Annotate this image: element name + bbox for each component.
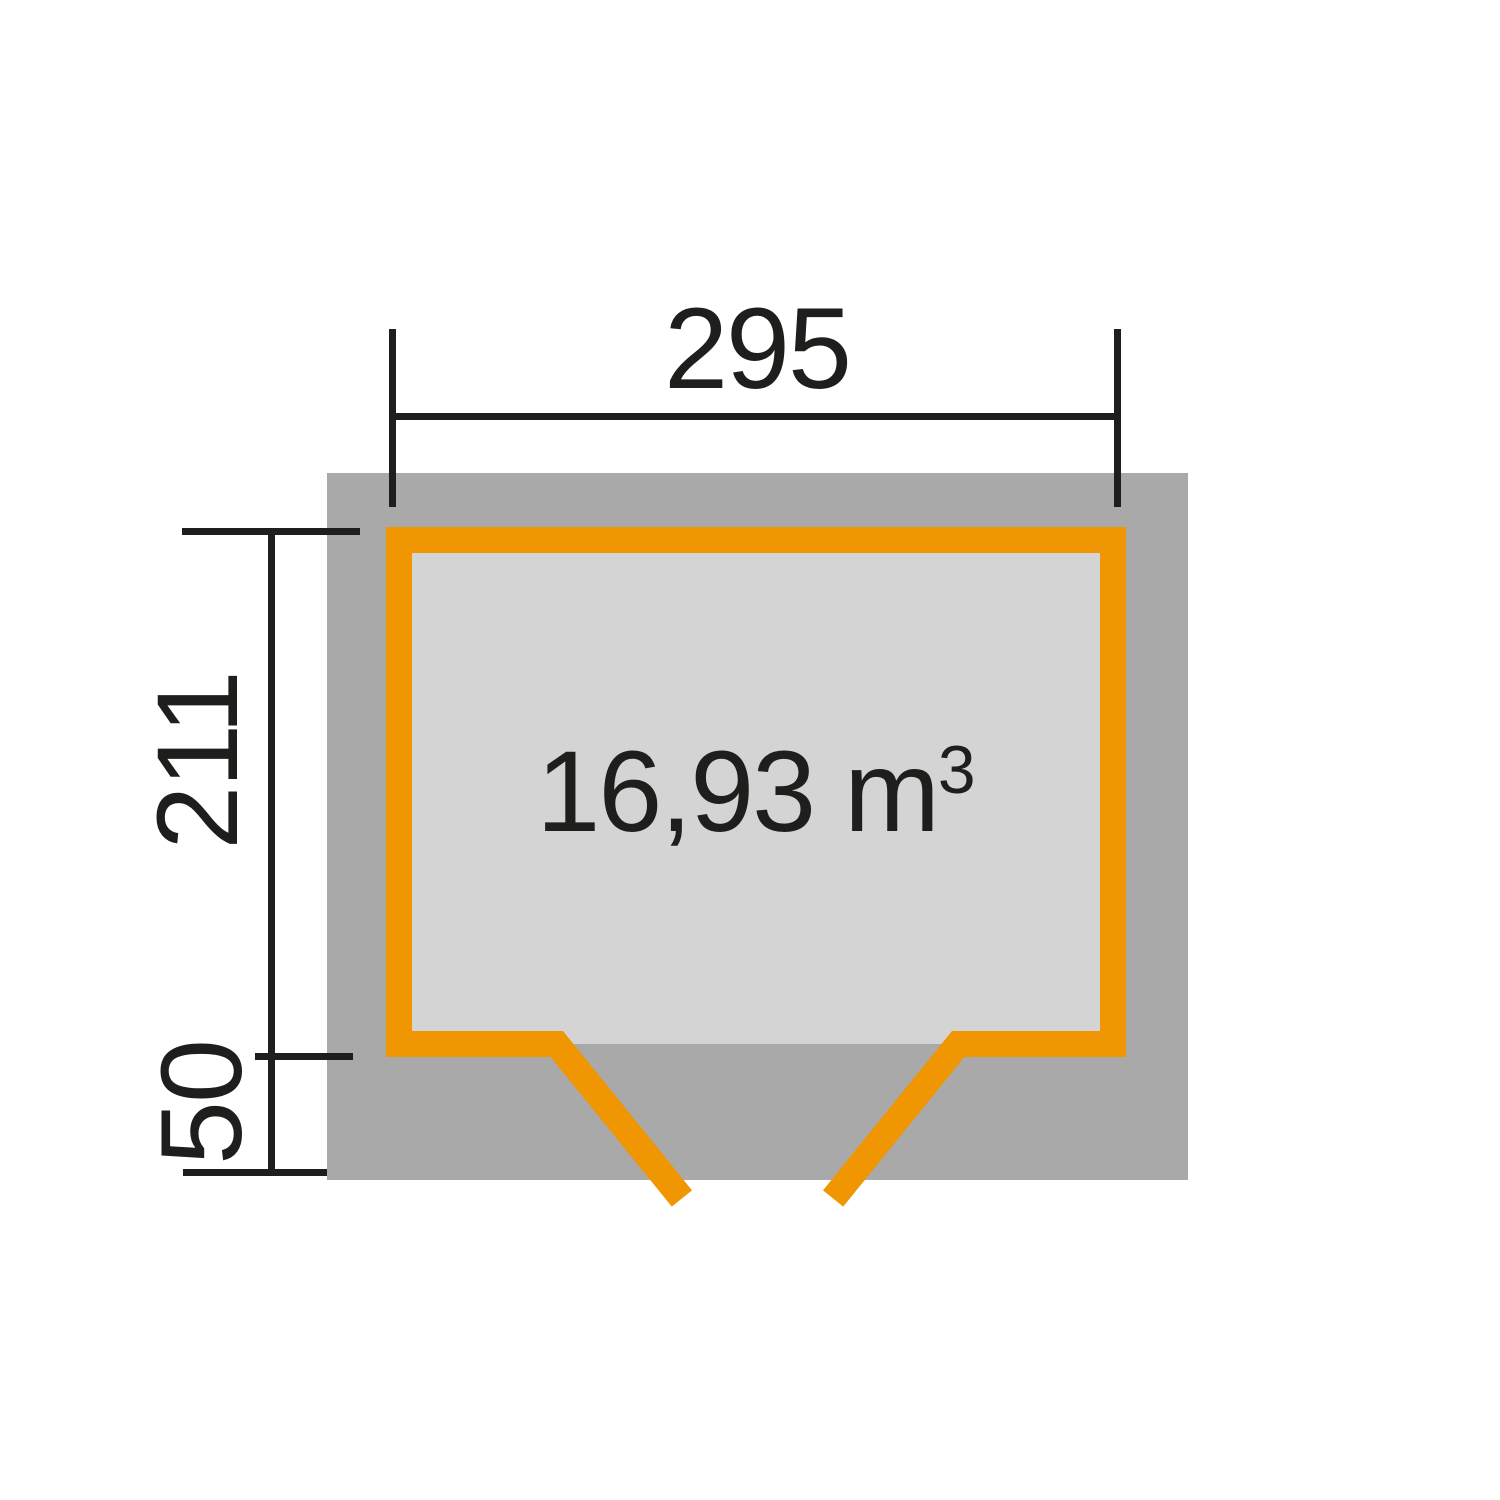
shed-interior-floor: 16,93 m3: [412, 553, 1100, 1031]
depth-tick-top: [182, 528, 360, 535]
width-dimension-line: [389, 413, 1121, 420]
depth-dimension-label: 211: [133, 601, 263, 921]
depth-tick-middle: [255, 1053, 353, 1060]
volume-exponent: 3: [938, 733, 976, 808]
volume-value: 16,93 m: [536, 728, 938, 856]
width-extension-tick-left: [389, 329, 396, 507]
shed-floor-plan-diagram: 16,93 m3 295 211 50: [0, 0, 1500, 1500]
volume-label: 16,93 m3: [536, 735, 975, 850]
depth-dimension-line: [268, 528, 275, 1176]
overhang-dimension-label: 50: [137, 943, 267, 1263]
door-opening-sill-outer: [563, 1044, 952, 1057]
width-extension-tick-right: [1114, 329, 1121, 507]
width-dimension-label: 295: [557, 284, 957, 414]
door-opening-sill-inner: [563, 1031, 952, 1044]
